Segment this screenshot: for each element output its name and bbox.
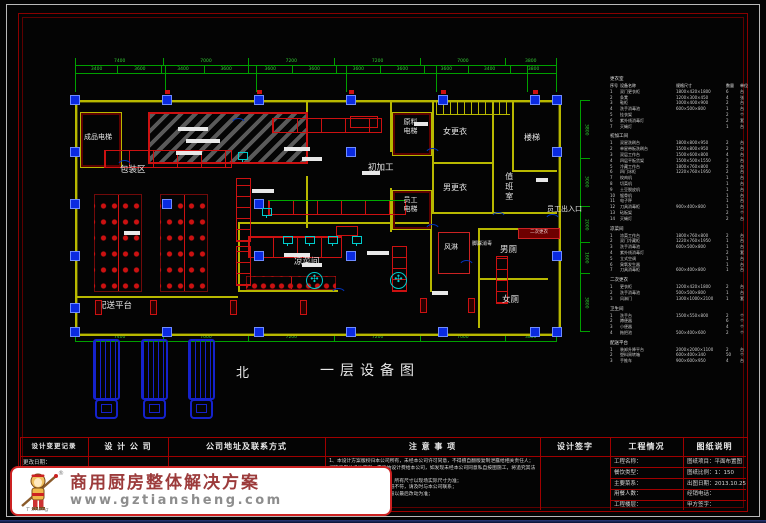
cad-sheet: 740070007200720070003800 340036003400360… bbox=[0, 0, 766, 523]
drawing-info-label: 出图日期：2013.10.25 bbox=[687, 479, 746, 490]
column-header-change-record: 设计变更记录 bbox=[20, 438, 88, 455]
drawing-info-label: 图纸比例：1：150 bbox=[687, 468, 746, 479]
project-info-label: 用餐人数： bbox=[614, 489, 642, 500]
column-header-drawing-info: 图纸说明 bbox=[683, 438, 746, 455]
column-header-signature: 设计签字 bbox=[540, 438, 610, 455]
drawing-info-label: 经销电话： bbox=[687, 489, 746, 500]
watermark-banner: ® T Sheng 商用厨房整体解决方案 www.gztiansheng.com bbox=[10, 466, 392, 516]
logo-caption: T Sheng bbox=[26, 507, 48, 513]
drawing-info-rows: 图纸项目：平面布置图图纸比例：1：150出图日期：2013.10.25经销电话：… bbox=[687, 457, 746, 511]
project-info-label: 主要菜系： bbox=[614, 479, 642, 490]
project-info-rows: 工程名称：餐饮类型：主要菜系：用餐人数：工程楼层： bbox=[614, 457, 642, 511]
title-block: 设计变更记录 设 计 公 司 公司地址及联系方式 注 意 事 项 设计签字 工程… bbox=[0, 0, 766, 523]
project-info-label: 工程楼层： bbox=[614, 500, 642, 511]
project-info-label: 工程名称： bbox=[614, 457, 642, 468]
project-info-label: 餐饮类型： bbox=[614, 468, 642, 479]
drawing-info-label: 甲方签字： bbox=[687, 500, 746, 511]
monkey-logo: ® T Sheng bbox=[18, 470, 62, 512]
column-header-design-company: 设 计 公 司 bbox=[88, 438, 168, 455]
column-header-address: 公司地址及联系方式 bbox=[168, 438, 325, 455]
drawing-info-label: 图纸项目：平面布置图 bbox=[687, 457, 746, 468]
banner-slogan: 商用厨房整体解决方案 bbox=[70, 473, 283, 493]
column-header-notes: 注 意 事 项 bbox=[325, 438, 540, 455]
registered-mark: ® bbox=[58, 470, 64, 477]
column-header-project: 工程情况 bbox=[610, 438, 683, 455]
banner-url[interactable]: www.gztiansheng.com bbox=[70, 493, 283, 509]
